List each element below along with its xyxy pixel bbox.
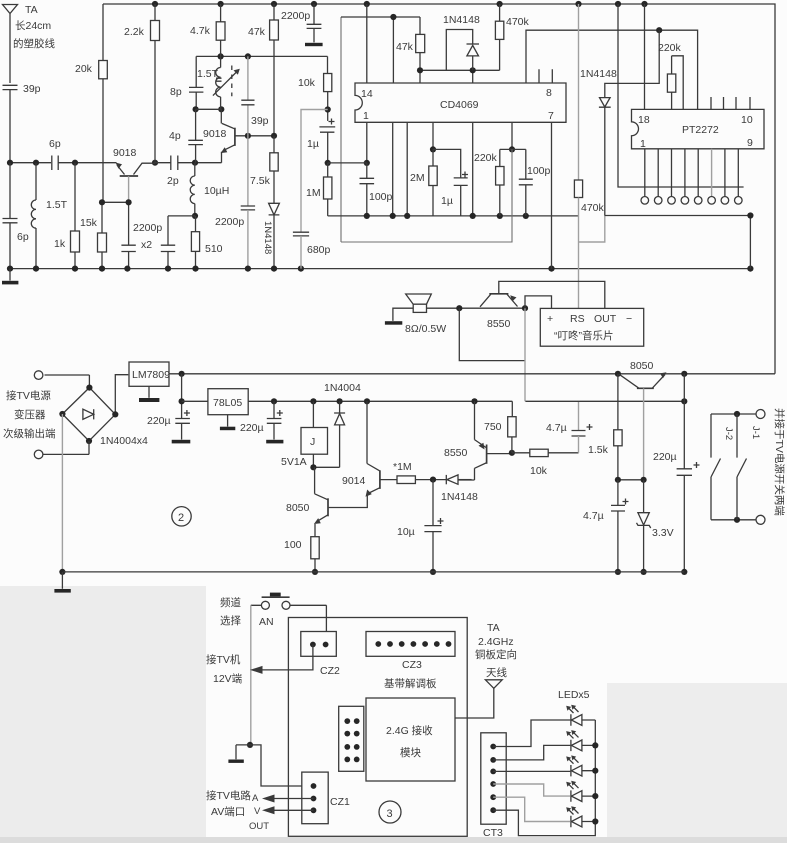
svg-text:18: 18 bbox=[638, 114, 650, 126]
svg-text:470k: 470k bbox=[581, 202, 605, 214]
svg-text:2M: 2M bbox=[410, 172, 425, 184]
svg-text:1N4004x4: 1N4004x4 bbox=[100, 435, 148, 447]
svg-text:LM7809: LM7809 bbox=[132, 369, 170, 381]
svg-text:6p: 6p bbox=[49, 138, 61, 150]
svg-text:510: 510 bbox=[205, 243, 223, 255]
svg-text:CD4069: CD4069 bbox=[440, 99, 479, 111]
svg-text:100p: 100p bbox=[527, 165, 551, 177]
svg-text:9018: 9018 bbox=[113, 147, 137, 159]
svg-text:2p: 2p bbox=[167, 175, 179, 187]
svg-text:并接于TV电源开关两端: 并接于TV电源开关两端 bbox=[773, 408, 786, 516]
svg-text:4p: 4p bbox=[169, 130, 181, 142]
svg-text:8050: 8050 bbox=[630, 360, 654, 372]
svg-text:3: 3 bbox=[387, 808, 393, 820]
svg-text:100p: 100p bbox=[369, 191, 393, 203]
svg-text:频道: 频道 bbox=[220, 596, 241, 609]
svg-text:PT2272: PT2272 bbox=[682, 124, 719, 136]
svg-text:220k: 220k bbox=[474, 152, 498, 164]
svg-text:9014: 9014 bbox=[342, 475, 366, 487]
svg-text:6p: 6p bbox=[17, 231, 29, 243]
svg-text:J-2: J-2 bbox=[723, 427, 734, 440]
svg-text:2.4G 接收: 2.4G 接收 bbox=[386, 724, 433, 737]
svg-text:78L05: 78L05 bbox=[213, 397, 242, 409]
svg-text:1.5T: 1.5T bbox=[46, 199, 68, 211]
svg-text:变压器: 变压器 bbox=[14, 408, 46, 421]
svg-text:680p: 680p bbox=[307, 244, 331, 256]
svg-text:CZ2: CZ2 bbox=[320, 665, 340, 677]
svg-text:4.7k: 4.7k bbox=[190, 25, 211, 37]
svg-text:220k: 220k bbox=[658, 42, 682, 54]
svg-text:10k: 10k bbox=[530, 465, 548, 477]
svg-text:次级输出端: 次级输出端 bbox=[3, 427, 56, 440]
svg-text:CZ3: CZ3 bbox=[402, 659, 422, 671]
svg-text:AV端口: AV端口 bbox=[211, 805, 245, 818]
svg-text:8p: 8p bbox=[170, 86, 182, 98]
svg-text:8Ω/0.5W: 8Ω/0.5W bbox=[405, 323, 446, 335]
svg-text:8550: 8550 bbox=[444, 447, 468, 459]
svg-text:8050: 8050 bbox=[286, 502, 310, 514]
svg-text:接TV电路: 接TV电路 bbox=[206, 789, 251, 802]
svg-text:“叮咚”音乐片: “叮咚”音乐片 bbox=[554, 329, 614, 342]
svg-text:V: V bbox=[254, 806, 261, 817]
svg-text:10µ: 10µ bbox=[397, 526, 415, 538]
svg-text:39p: 39p bbox=[23, 83, 41, 95]
svg-text:1N4148: 1N4148 bbox=[441, 491, 478, 503]
svg-text:14: 14 bbox=[361, 88, 373, 100]
svg-text:2200p: 2200p bbox=[215, 216, 244, 228]
svg-text:2: 2 bbox=[178, 512, 184, 524]
svg-text:模块: 模块 bbox=[400, 747, 421, 759]
svg-text:选择: 选择 bbox=[220, 614, 241, 627]
svg-text:4.7µ: 4.7µ bbox=[583, 510, 604, 522]
svg-text:1N4148: 1N4148 bbox=[580, 68, 617, 80]
svg-text:1.5k: 1.5k bbox=[588, 444, 609, 456]
svg-text:OUT: OUT bbox=[249, 821, 269, 832]
svg-text:8: 8 bbox=[546, 87, 552, 99]
svg-text:CT3: CT3 bbox=[483, 827, 503, 839]
svg-text:+: + bbox=[547, 313, 553, 325]
svg-text:AN: AN bbox=[259, 616, 274, 628]
svg-text:OUT: OUT bbox=[594, 313, 617, 325]
svg-text:20k: 20k bbox=[75, 63, 93, 75]
svg-text:100: 100 bbox=[284, 539, 302, 551]
svg-text:1N4148: 1N4148 bbox=[443, 14, 480, 26]
svg-text:47k: 47k bbox=[248, 26, 266, 38]
svg-text:750: 750 bbox=[484, 421, 502, 433]
svg-text:15k: 15k bbox=[80, 217, 98, 229]
svg-text:TA: TA bbox=[487, 622, 500, 634]
svg-text:8550: 8550 bbox=[487, 318, 511, 330]
svg-text:RS: RS bbox=[570, 313, 585, 325]
svg-text:1M: 1M bbox=[306, 187, 321, 199]
svg-text:7: 7 bbox=[548, 110, 554, 122]
svg-text:2.4GHz: 2.4GHz bbox=[478, 636, 514, 648]
svg-text:9018: 9018 bbox=[203, 128, 227, 140]
svg-text:220µ: 220µ bbox=[653, 451, 677, 463]
svg-text:基带解调板: 基带解调板 bbox=[384, 677, 437, 690]
svg-text:1: 1 bbox=[363, 110, 369, 122]
svg-text:220µ: 220µ bbox=[147, 415, 171, 427]
svg-text:5V1A: 5V1A bbox=[281, 456, 307, 468]
svg-text:天线: 天线 bbox=[486, 666, 507, 679]
svg-text:7.5k: 7.5k bbox=[250, 175, 271, 187]
svg-text:*1M: *1M bbox=[393, 461, 412, 473]
svg-text:10k: 10k bbox=[298, 77, 316, 89]
svg-text:470k: 470k bbox=[506, 16, 530, 28]
svg-text:3.3V: 3.3V bbox=[652, 527, 674, 539]
svg-text:1k: 1k bbox=[54, 238, 66, 250]
svg-text:10: 10 bbox=[741, 114, 753, 126]
svg-text:的塑胶线: 的塑胶线 bbox=[13, 37, 55, 50]
svg-text:47k: 47k bbox=[396, 41, 414, 53]
svg-text:2200p: 2200p bbox=[281, 10, 310, 22]
svg-text:J: J bbox=[310, 436, 315, 448]
svg-text:1µ: 1µ bbox=[307, 138, 319, 150]
svg-text:TA: TA bbox=[25, 4, 38, 16]
svg-text:39p: 39p bbox=[251, 115, 269, 127]
svg-text:9: 9 bbox=[747, 137, 753, 149]
svg-text:CZ1: CZ1 bbox=[330, 796, 350, 808]
svg-text:4.7µ: 4.7µ bbox=[546, 422, 567, 434]
svg-text:x2: x2 bbox=[141, 239, 152, 251]
svg-text:铜板定向: 铜板定向 bbox=[475, 648, 517, 661]
svg-text:2200p: 2200p bbox=[133, 222, 162, 234]
svg-text:1.5T: 1.5T bbox=[197, 68, 219, 80]
svg-text:1N4004: 1N4004 bbox=[324, 382, 361, 394]
svg-text:12V端: 12V端 bbox=[213, 672, 243, 685]
svg-text:1: 1 bbox=[640, 138, 646, 150]
svg-text:J-1: J-1 bbox=[750, 426, 761, 439]
svg-text:1N4148: 1N4148 bbox=[262, 221, 273, 254]
svg-text:A: A bbox=[252, 793, 259, 804]
svg-text:220µ: 220µ bbox=[240, 422, 264, 434]
svg-text:10µH: 10µH bbox=[204, 185, 229, 197]
svg-text:2.2k: 2.2k bbox=[124, 26, 145, 38]
svg-text:LEDx5: LEDx5 bbox=[558, 689, 590, 701]
svg-text:长24cm: 长24cm bbox=[15, 20, 51, 32]
svg-text:接TV电源: 接TV电源 bbox=[6, 389, 51, 402]
svg-text:接TV机: 接TV机 bbox=[206, 653, 241, 666]
svg-text:−: − bbox=[626, 313, 632, 325]
svg-text:1µ: 1µ bbox=[441, 195, 453, 207]
